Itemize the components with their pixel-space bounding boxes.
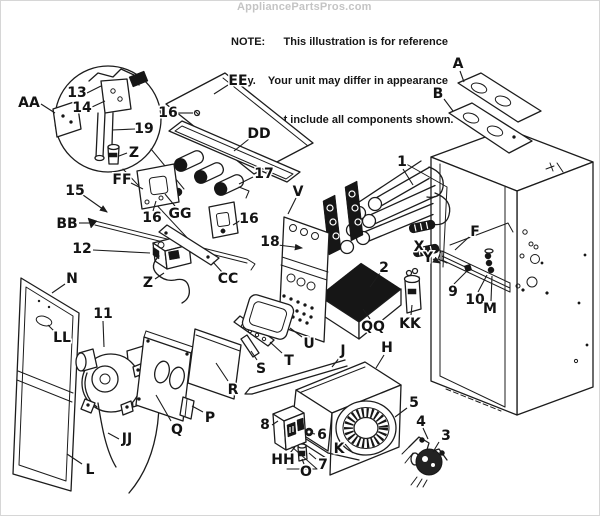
part-label-AA: AA	[18, 95, 40, 111]
pressure-switch-kk-drawing	[405, 269, 422, 314]
part-label-7: 7	[318, 457, 328, 473]
part-label-1: 1	[397, 154, 407, 170]
part-label-12: 12	[72, 241, 91, 257]
leader-line-H	[376, 355, 384, 368]
part-label-KK: KK	[399, 316, 422, 332]
part-label-Z: Z	[129, 145, 139, 161]
part-label-K: K	[334, 441, 346, 457]
diagram-svg: AA131419Z16EEDD17FF15BB16GG1612ZCC18V1AB…	[1, 1, 600, 516]
part-label-Y: Y	[422, 250, 434, 266]
part-label-U: U	[303, 336, 314, 352]
part-label-18: 18	[260, 234, 279, 250]
leader-line-13	[87, 86, 101, 93]
leader-line-P	[192, 406, 203, 412]
part-label-L: L	[86, 462, 95, 478]
part-label-5: 5	[409, 395, 419, 411]
part-label-16: 16	[158, 105, 177, 121]
part-label-A: A	[453, 56, 464, 72]
part-label-JJ: JJ	[121, 431, 132, 447]
leader-line-12	[93, 250, 150, 253]
door-panel-drawing	[13, 278, 79, 491]
part-label-4: 4	[416, 414, 426, 430]
part-label-FF: FF	[112, 172, 131, 188]
part-label-BB: BB	[56, 216, 77, 232]
leader-line-19	[112, 129, 135, 130]
part-label-QQ: QQ	[361, 319, 385, 335]
part-label-15: 15	[65, 183, 84, 199]
part-label-LL: LL	[53, 330, 71, 346]
part-label-R: R	[228, 382, 239, 398]
part-label-11: 11	[93, 306, 112, 322]
part-label-H: H	[381, 340, 393, 356]
part-label-V: V	[293, 184, 304, 200]
plate-16-right-drawing	[209, 202, 238, 238]
leader-line-JJ	[108, 433, 119, 439]
part-label-T: T	[284, 353, 294, 369]
leader-line-T	[270, 342, 282, 353]
part-label-14: 14	[72, 100, 92, 116]
part-label-N: N	[66, 271, 78, 287]
part-label-P: P	[205, 410, 215, 426]
part-label-9: 9	[448, 284, 458, 300]
part-label-16: 16	[142, 210, 161, 226]
part-label-6: 6	[317, 427, 327, 443]
leader-line-B	[444, 99, 453, 111]
part-label-F: F	[470, 224, 480, 240]
cabinet-drawing	[431, 129, 593, 415]
part-label-B: B	[433, 86, 444, 102]
part-label-CC: CC	[218, 271, 239, 287]
part-label-10: 10	[465, 292, 485, 308]
part-label-M: M	[483, 301, 497, 317]
part-label-DD: DD	[247, 126, 270, 142]
leader-line-A	[460, 71, 464, 82]
part-label-O: O	[300, 464, 312, 480]
plate-q-drawing	[136, 331, 194, 421]
part-label-13: 13	[67, 85, 86, 101]
part-label-Q: Q	[171, 422, 183, 438]
leader-line-V	[288, 198, 296, 214]
leader-line-11	[103, 321, 104, 347]
part-label-2: 2	[379, 260, 389, 276]
leader-line-14	[92, 101, 105, 107]
part-label-Z: Z	[143, 275, 153, 291]
part-label-HH: HH	[271, 452, 294, 468]
part-label-17: 17	[254, 166, 273, 182]
part-label-J: J	[339, 343, 345, 359]
leader-line-Z	[119, 153, 127, 156]
motor-3-drawing	[411, 449, 442, 487]
part-label-3: 3	[441, 428, 451, 444]
part-label-EE: EE	[228, 73, 247, 89]
part-label-16: 16	[239, 211, 258, 227]
leader-line-7	[309, 453, 316, 459]
plate-ff-gg-drawing	[137, 164, 179, 209]
diagram-page: AppliancePartsPros.com NOTE: This illust…	[0, 0, 600, 516]
part-label-19: 19	[134, 121, 153, 137]
leader-line-15	[83, 195, 107, 212]
part-label-8: 8	[260, 417, 270, 433]
leader-line-N	[52, 284, 65, 293]
part-label-S: S	[256, 361, 266, 377]
part-label-GG: GG	[169, 206, 192, 222]
